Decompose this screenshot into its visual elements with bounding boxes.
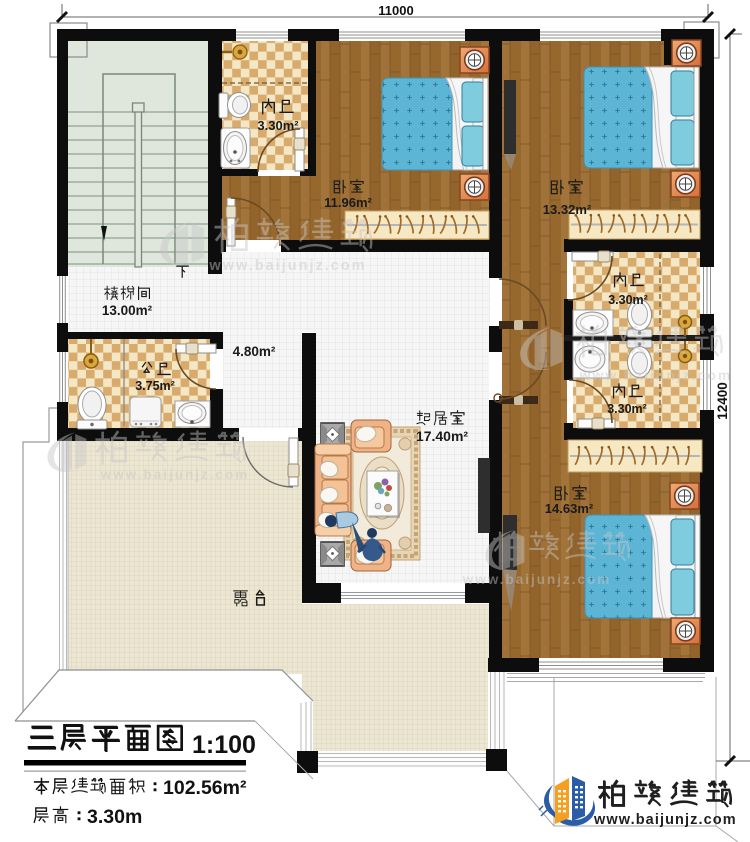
- svg-text:3.75m²: 3.75m²: [135, 379, 175, 393]
- svg-text:www.baijunjz.com: www.baijunjz.com: [208, 258, 366, 274]
- svg-text:3.30m²: 3.30m²: [607, 402, 647, 416]
- svg-text:www.baijunjz.com: www.baijunjz.com: [579, 367, 733, 383]
- svg-text:13.32m²: 13.32m²: [543, 202, 592, 217]
- svg-text:4.80m²: 4.80m²: [233, 344, 276, 359]
- svg-text:1:100: 1:100: [192, 731, 256, 759]
- svg-text:3.30m²: 3.30m²: [257, 118, 299, 133]
- svg-text:12400: 12400: [715, 382, 730, 420]
- svg-text:www.baijunjz.com: www.baijunjz.com: [462, 572, 612, 587]
- svg-text:www.baijunjz.com: www.baijunjz.com: [593, 812, 737, 828]
- svg-text:102.56m²: 102.56m²: [163, 777, 247, 799]
- svg-text:13.00m²: 13.00m²: [102, 303, 153, 318]
- svg-text:14.63m²: 14.63m²: [545, 501, 594, 516]
- svg-text:11.96m²: 11.96m²: [324, 195, 372, 210]
- svg-text:3.30m²: 3.30m²: [608, 293, 648, 307]
- svg-text:17.40m²: 17.40m²: [416, 428, 468, 444]
- svg-text:www.baijunjz.com: www.baijunjz.com: [100, 467, 250, 482]
- svg-text:11000: 11000: [378, 3, 413, 18]
- svg-text:3.30m: 3.30m: [87, 806, 142, 828]
